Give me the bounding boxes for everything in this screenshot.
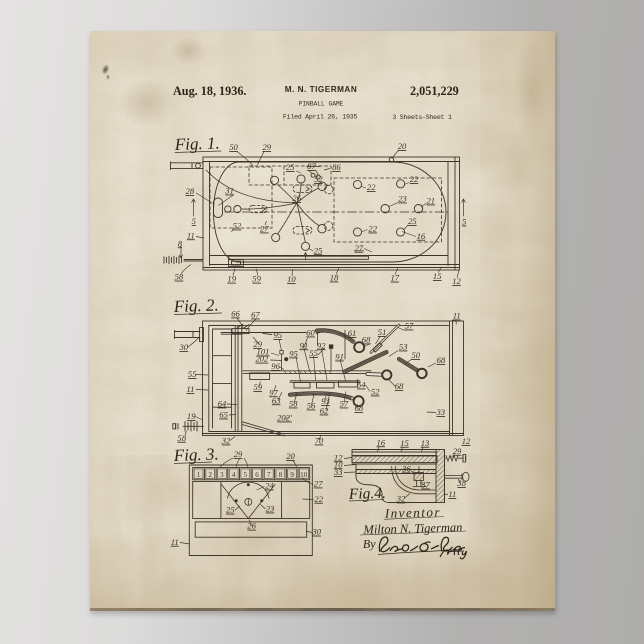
svg-text:32: 32 [221, 436, 231, 446]
svg-text:15: 15 [433, 271, 442, 281]
svg-text:26: 26 [292, 193, 301, 203]
svg-text:11: 11 [171, 537, 179, 547]
svg-text:22: 22 [410, 174, 419, 184]
svg-text:16: 16 [377, 437, 386, 447]
svg-text:22: 22 [314, 494, 323, 504]
svg-text:61: 61 [348, 328, 357, 338]
svg-text:92: 92 [317, 340, 326, 350]
svg-text:18: 18 [330, 273, 339, 283]
svg-text:20: 20 [286, 451, 295, 461]
svg-text:27: 27 [260, 224, 269, 234]
svg-text:11: 11 [186, 384, 194, 394]
svg-text:8: 8 [178, 238, 183, 248]
svg-text:25: 25 [314, 245, 323, 255]
svg-text:31: 31 [224, 186, 234, 196]
svg-text:11: 11 [187, 230, 195, 240]
svg-text:3 Sheets–Sheet 1: 3 Sheets–Sheet 1 [392, 114, 452, 121]
svg-text:13: 13 [421, 438, 430, 448]
svg-text:6: 6 [255, 471, 259, 479]
svg-text:1: 1 [197, 471, 201, 479]
svg-text:12: 12 [452, 276, 461, 286]
svg-text:202': 202' [277, 413, 292, 423]
svg-text:7: 7 [267, 471, 271, 479]
svg-text:68: 68 [395, 381, 404, 391]
svg-text:36: 36 [401, 464, 411, 474]
svg-text:20: 20 [398, 141, 407, 151]
svg-text:By: By [363, 537, 377, 551]
svg-text:28: 28 [186, 186, 195, 196]
svg-text:50: 50 [229, 142, 238, 152]
svg-text:Fig. 2.: Fig. 2. [172, 295, 218, 316]
svg-text:68: 68 [362, 335, 371, 345]
svg-text:57: 57 [405, 321, 414, 331]
svg-text:96: 96 [271, 361, 280, 371]
svg-text:9: 9 [290, 471, 294, 479]
svg-text:29: 29 [263, 142, 272, 152]
svg-text:55: 55 [309, 348, 318, 358]
svg-text:M. N. TIGERMAN: M. N. TIGERMAN [285, 85, 358, 94]
svg-text:87: 87 [307, 161, 316, 171]
svg-text:62: 62 [320, 406, 329, 416]
svg-text:58: 58 [175, 272, 184, 282]
svg-text:52: 52 [371, 387, 380, 397]
svg-text:202: 202 [255, 354, 269, 364]
svg-text:52: 52 [233, 221, 242, 231]
svg-text:37: 37 [420, 480, 430, 490]
svg-text:66: 66 [231, 309, 240, 319]
svg-text:65: 65 [219, 410, 228, 420]
svg-text:53: 53 [399, 342, 408, 352]
svg-text:10: 10 [300, 471, 308, 479]
svg-text:59: 59 [253, 382, 262, 392]
svg-text:24: 24 [265, 481, 274, 491]
svg-text:70: 70 [315, 436, 324, 446]
svg-text:64: 64 [218, 399, 227, 409]
svg-text:55: 55 [188, 369, 197, 379]
svg-text:86: 86 [332, 162, 341, 172]
svg-text:95: 95 [274, 330, 283, 340]
svg-text:33: 33 [436, 407, 446, 417]
svg-text:29: 29 [234, 449, 243, 459]
svg-text:91: 91 [335, 352, 344, 362]
svg-text:5: 5 [244, 471, 248, 479]
svg-text:27: 27 [314, 479, 323, 489]
svg-text:95: 95 [289, 349, 298, 359]
svg-text:25: 25 [286, 162, 295, 172]
svg-text:11: 11 [453, 311, 461, 321]
svg-text:16: 16 [417, 231, 426, 241]
svg-text:Aug. 18, 1936.: Aug. 18, 1936. [173, 84, 246, 98]
svg-text:19: 19 [187, 411, 196, 421]
svg-text:2,051,229: 2,051,229 [410, 84, 459, 98]
svg-text:30: 30 [311, 527, 321, 537]
svg-text:58: 58 [289, 399, 298, 409]
svg-text:50: 50 [412, 350, 421, 360]
svg-text:5: 5 [462, 217, 467, 227]
svg-text:25: 25 [226, 505, 235, 515]
svg-text:21: 21 [427, 196, 436, 206]
svg-text:26: 26 [247, 521, 256, 531]
svg-text:5: 5 [192, 216, 197, 226]
svg-text:56: 56 [307, 401, 316, 411]
svg-text:68: 68 [437, 355, 446, 365]
svg-text:3: 3 [220, 471, 224, 479]
svg-text:91: 91 [300, 340, 309, 350]
svg-text:59: 59 [252, 274, 261, 284]
svg-text:63: 63 [272, 395, 281, 405]
svg-text:4: 4 [232, 471, 236, 479]
svg-text:8: 8 [279, 471, 283, 479]
svg-text:30: 30 [179, 342, 189, 352]
svg-text:67: 67 [251, 310, 260, 320]
svg-text:51: 51 [378, 327, 387, 337]
svg-text:27: 27 [355, 243, 364, 253]
svg-text:22: 22 [367, 182, 376, 192]
svg-text:15: 15 [400, 438, 409, 448]
svg-text:23: 23 [266, 504, 275, 514]
svg-text:12: 12 [462, 436, 471, 446]
svg-text:Inventor: Inventor [384, 504, 441, 520]
svg-text:Filed April 26, 1935: Filed April 26, 1935 [283, 114, 357, 121]
svg-text:68: 68 [355, 403, 364, 413]
svg-text:PINBALL GAME: PINBALL GAME [299, 101, 344, 108]
svg-text:23: 23 [398, 194, 407, 204]
svg-text:29: 29 [453, 446, 462, 456]
svg-text:52: 52 [314, 174, 323, 184]
svg-text:60: 60 [306, 328, 315, 338]
svg-text:38: 38 [456, 478, 466, 488]
svg-text:19: 19 [227, 274, 236, 284]
svg-text:11: 11 [448, 489, 456, 499]
svg-text:22: 22 [368, 224, 377, 234]
svg-text:33: 33 [333, 467, 343, 477]
svg-text:2: 2 [208, 471, 212, 479]
svg-text:25: 25 [408, 216, 417, 226]
